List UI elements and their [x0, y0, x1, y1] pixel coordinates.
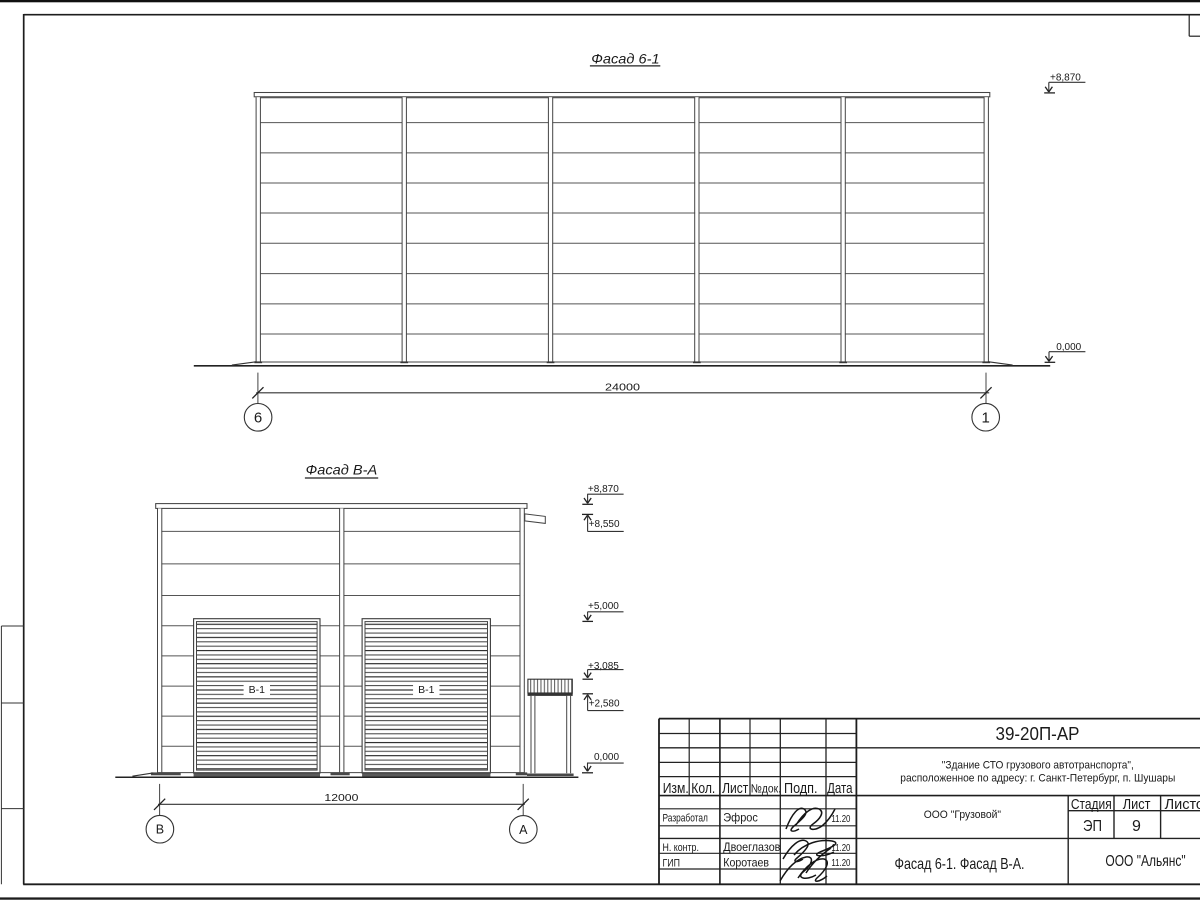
svg-text:+5,000: +5,000 [588, 601, 619, 612]
svg-text:12000: 12000 [324, 792, 358, 804]
svg-text:Фасад В-А: Фасад В-А [306, 461, 378, 477]
svg-text:расположенное по адресу: г. Са: расположенное по адресу: г. Санкт-Петерб… [900, 772, 1175, 784]
svg-text:Н. контр.: Н. контр. [663, 842, 699, 854]
svg-text:+8,870: +8,870 [588, 484, 619, 495]
svg-text:+2,580: +2,580 [589, 698, 620, 709]
svg-text:В-1: В-1 [249, 684, 266, 696]
svg-text:Стадия: Стадия [1071, 797, 1112, 813]
svg-text:В-1: В-1 [418, 684, 435, 696]
svg-text:1: 1 [982, 410, 990, 427]
svg-text:11.20: 11.20 [831, 858, 850, 869]
svg-text:Изм.: Изм. [663, 780, 689, 797]
svg-text:Коротаев: Коротаев [723, 855, 769, 869]
svg-text:6: 6 [254, 410, 262, 427]
svg-text:ЭП: ЭП [1083, 818, 1102, 835]
svg-text:Фасад 6-1. Фасад В-А.: Фасад 6-1. Фасад В-А. [895, 856, 1025, 873]
svg-text:Лист: Лист [1123, 797, 1151, 813]
svg-text:"Здание СТО грузового автотран: "Здание СТО грузового автотранспорта", [942, 760, 1134, 772]
svg-text:№док.: №док. [751, 782, 781, 796]
svg-text:Двоеглазов: Двоеглазов [723, 840, 780, 854]
svg-text:В: В [156, 823, 164, 837]
svg-text:+8,550: +8,550 [589, 519, 620, 530]
svg-text:39-20П-АР: 39-20П-АР [996, 723, 1080, 744]
svg-text:Подп.: Подп. [784, 780, 818, 797]
svg-text:ООО "Альянс": ООО "Альянс" [1105, 853, 1185, 870]
svg-text:Кол.: Кол. [691, 780, 715, 797]
svg-text:11.20: 11.20 [831, 814, 850, 825]
svg-text:9: 9 [1132, 818, 1141, 835]
svg-text:Листов: Листов [1165, 797, 1200, 813]
svg-text:0,000: 0,000 [594, 752, 619, 763]
svg-text:Эфрос: Эфрос [723, 811, 758, 825]
svg-text:А: А [519, 823, 528, 837]
svg-text:Разработал: Разработал [663, 813, 708, 825]
svg-text:ГИП: ГИП [663, 857, 681, 869]
svg-text:Фасад 6-1: Фасад 6-1 [591, 51, 659, 67]
svg-text:Дата: Дата [827, 780, 853, 797]
svg-text:ООО "Грузовой": ООО "Грузовой" [924, 809, 1001, 821]
svg-text:24000: 24000 [605, 381, 640, 393]
svg-text:Лист: Лист [722, 780, 748, 797]
